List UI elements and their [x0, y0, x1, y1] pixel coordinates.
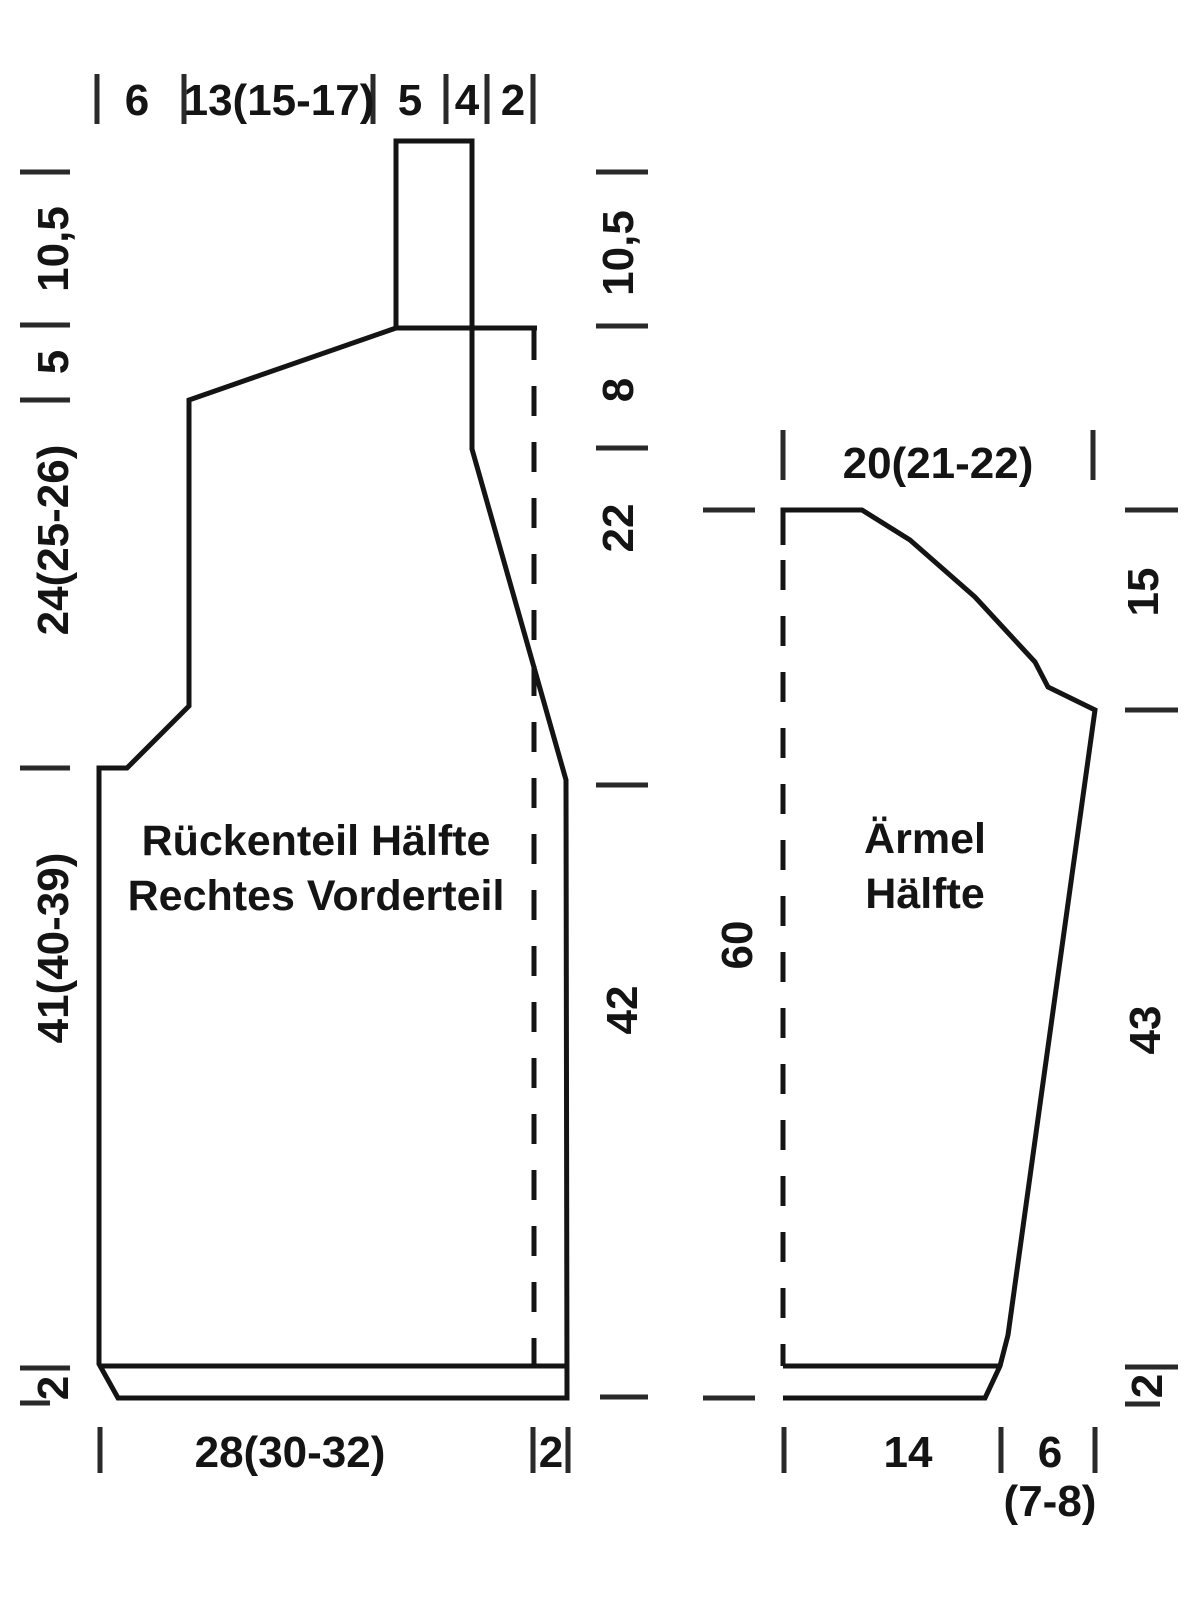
sleeve-label-line2: Hälfte [865, 870, 984, 918]
measure-sleeve-total-length: 60 [713, 921, 762, 970]
back-front-left-measures: 10,5 5 24(25-26) 41(40-39) 2 [20, 172, 78, 1403]
pattern-schematic: Rückenteil Hälfte Rechtes Vorderteil 6 1… [0, 0, 1200, 1600]
sleeve-top-measures: 20(21-22) [783, 430, 1093, 488]
measure-front-band: 2 [501, 76, 525, 125]
measure-collar-height: 10,5 [29, 206, 78, 292]
measure-neck-drop: 8 [594, 378, 643, 402]
measure-collar-height-front: 10,5 [594, 210, 643, 296]
measure-cuff-width: 14 [884, 1428, 933, 1477]
back-front-piece: Rückenteil Hälfte Rechtes Vorderteil [99, 141, 567, 1398]
back-front-label-line2: Rechtes Vorderteil [128, 872, 505, 920]
measure-side-length: 41(40-39) [29, 853, 78, 1044]
measure-front-length: 42 [598, 986, 647, 1035]
measure-body-width: 28(30-32) [195, 1428, 386, 1477]
back-front-bottom-measures: 28(30-32) 2 [100, 1427, 568, 1477]
sleeve-label-line1: Ärmel [864, 815, 986, 863]
sleeve-right-measures: 15 43 2 [1119, 510, 1178, 1404]
measure-band-width: 2 [539, 1428, 563, 1477]
measure-sleeve-seam-length: 43 [1121, 1006, 1170, 1055]
measure-hem-band: 2 [29, 1376, 78, 1400]
measure-collar-width: 5 [398, 76, 422, 125]
sleeve-left-measures: 60 [703, 510, 762, 1398]
measure-shoulder-width: 6 [125, 76, 149, 125]
measure-sleeve-cap-height: 15 [1119, 568, 1168, 617]
measure-cuff-band-height: 2 [1123, 1374, 1172, 1398]
schematic-svg: Rückenteil Hälfte Rechtes Vorderteil 6 1… [0, 0, 1200, 1600]
back-front-top-measures: 6 13(15-17) 5 4 2 [97, 74, 533, 125]
measure-shoulder-slope: 5 [29, 350, 78, 374]
measure-sleeve-top-width: 20(21-22) [843, 439, 1034, 488]
back-front-label-line1: Rückenteil Hälfte [142, 817, 491, 865]
measure-armhole-depth: 24(25-26) [29, 445, 78, 636]
measure-neckline-slope: 22 [594, 504, 643, 553]
sleeve-piece: Ärmel Hälfte [783, 510, 1095, 1398]
measure-front-neck: 4 [455, 76, 480, 125]
back-front-inner-measures: 10,5 8 22 42 [594, 172, 648, 1397]
measure-cuff-extra-sizes: (7-8) [1004, 1477, 1097, 1526]
sleeve-outline [783, 510, 1095, 1398]
sleeve-bottom-measures: 14 6 (7-8) [784, 1427, 1096, 1526]
measure-neck-width: 13(15-17) [184, 76, 375, 125]
measure-cuff-extra: 6 [1038, 1428, 1062, 1477]
